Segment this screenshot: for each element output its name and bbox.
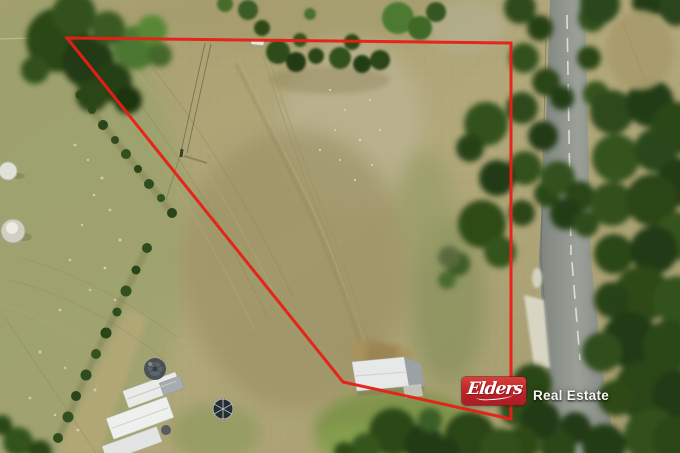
aerial-photo-stage: Elders Real Estate xyxy=(0,0,680,453)
elders-logo: Elders xyxy=(462,377,526,405)
water-tank-small xyxy=(0,162,17,180)
real-estate-label: Real Estate xyxy=(533,388,609,403)
aerial-photo xyxy=(0,0,680,453)
trampoline xyxy=(213,399,233,419)
grass-gap-top-right xyxy=(606,10,674,90)
